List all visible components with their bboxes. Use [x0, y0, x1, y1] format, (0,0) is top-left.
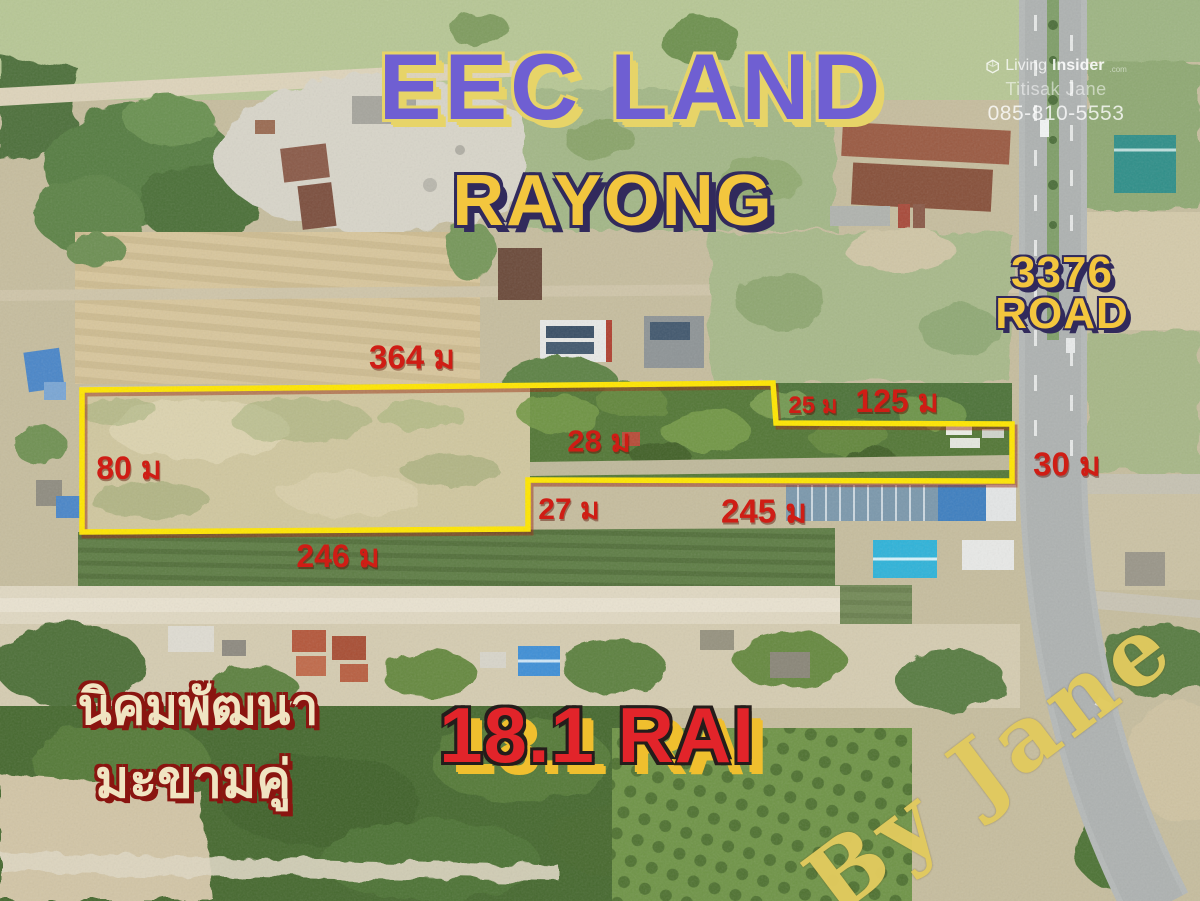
brand-bold: Insider [1052, 58, 1104, 74]
brand-prefix: Living [1005, 58, 1047, 74]
road-sign-word: ROAD [995, 292, 1129, 336]
measure-step-edge: 25 ม [788, 394, 837, 418]
measure-right-edge: 30 ม [1033, 448, 1101, 481]
measure-bottom-right-edge: 245 ม [721, 495, 807, 528]
measure-upper-right-edge: 125 ม [855, 385, 938, 417]
measure-inner-width: 28 ม [567, 426, 631, 457]
district-label-line1: นิคมพัฒนา [78, 682, 319, 732]
measure-bottom-left-edge: 246 ม [296, 540, 379, 572]
living-insider-logo-icon [985, 59, 1000, 74]
agent-name: Titisak Jane [985, 80, 1127, 98]
agent-phone: 085-810-5553 [985, 103, 1127, 124]
measure-left-edge: 80 ม [96, 452, 162, 484]
measure-lower-step-edge: 27 ม [538, 495, 599, 525]
area-label: 18.1 RAI [439, 696, 755, 774]
measure-top-edge: 364 ม [369, 341, 455, 374]
land-listing-image: EEC LAND RAYONG LivingInsider.com Titisa… [0, 0, 1200, 901]
headline-eec-land: EEC LAND [379, 40, 883, 134]
living-insider-logo: LivingInsider.com [985, 58, 1127, 74]
district-label-line2: มะขามคู่ [95, 754, 291, 806]
agent-watermark: LivingInsider.com Titisak Jane 085-810-5… [985, 58, 1127, 124]
brand-tld: .com [1109, 66, 1126, 74]
headline-rayong: RAYONG [452, 165, 773, 237]
